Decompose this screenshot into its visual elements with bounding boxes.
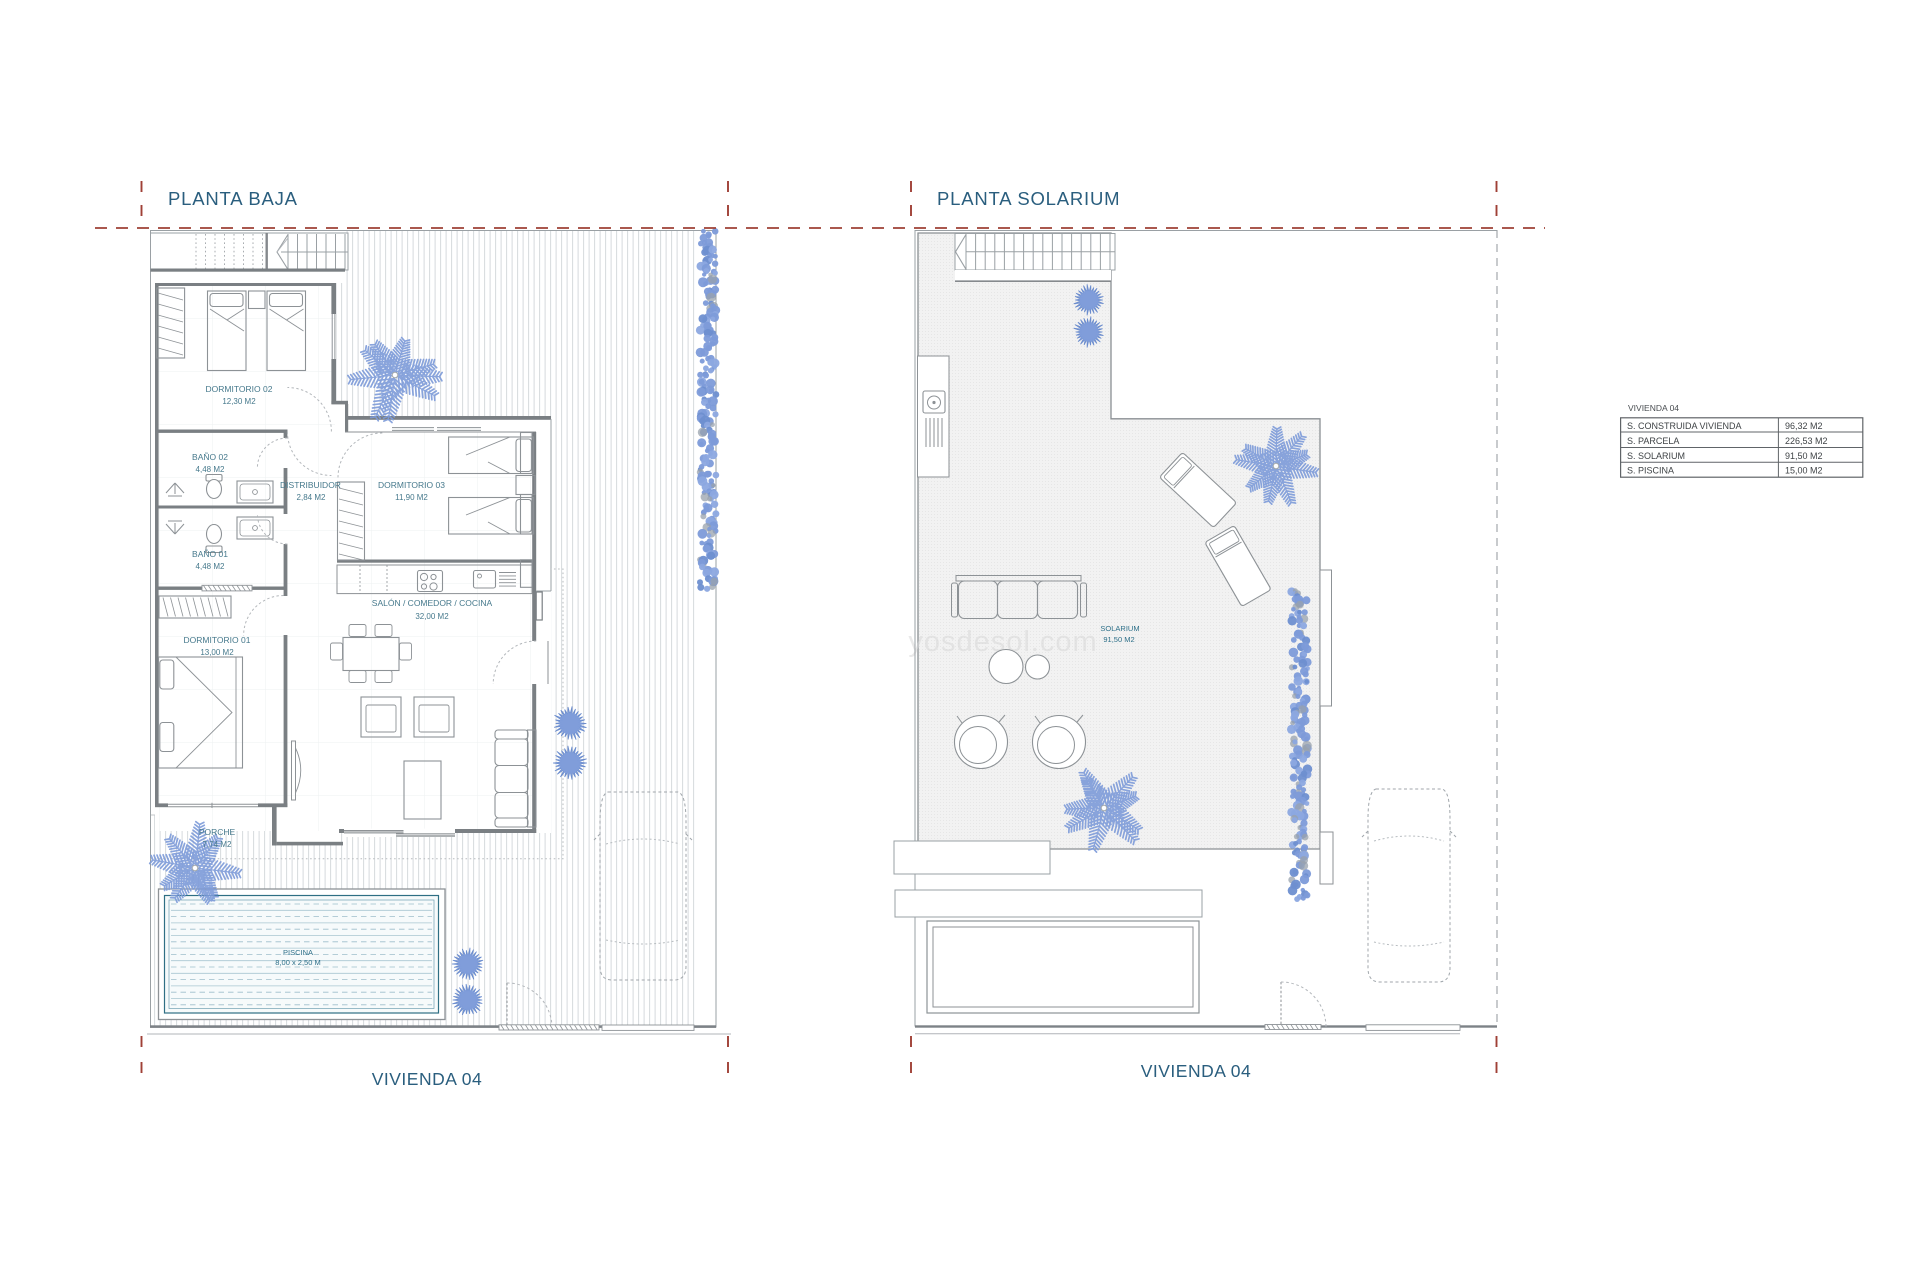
- svg-text:S. SOLARIUM: S. SOLARIUM: [1627, 451, 1685, 461]
- svg-text:12,30 M2: 12,30 M2: [222, 397, 256, 406]
- svg-text:SOLARIUM: SOLARIUM: [1100, 624, 1139, 633]
- svg-text:11,90 M2: 11,90 M2: [395, 493, 428, 502]
- svg-text:4,48 M2: 4,48 M2: [196, 465, 225, 474]
- svg-text:VIVIENDA 04: VIVIENDA 04: [1141, 1061, 1252, 1081]
- svg-text:91,50 M2: 91,50 M2: [1103, 635, 1134, 644]
- svg-text:13,00 M2: 13,00 M2: [200, 648, 234, 657]
- svg-text:PORCHE: PORCHE: [199, 827, 236, 837]
- svg-text:VIVIENDA 04: VIVIENDA 04: [372, 1069, 483, 1089]
- svg-text:PISCINA: PISCINA: [283, 948, 313, 957]
- svg-text:96,32 M2: 96,32 M2: [1785, 421, 1823, 431]
- svg-text:PLANTA BAJA: PLANTA BAJA: [168, 188, 298, 209]
- svg-text:8,00 x 2,50 M: 8,00 x 2,50 M: [275, 958, 320, 967]
- svg-text:SALÓN / COMEDOR / COCINA: SALÓN / COMEDOR / COCINA: [372, 598, 493, 608]
- svg-text:DORMITORIO 02: DORMITORIO 02: [206, 384, 273, 394]
- svg-text:DISTRIBUIDOR: DISTRIBUIDOR: [280, 480, 341, 490]
- svg-text:S. PISCINA: S. PISCINA: [1627, 466, 1674, 476]
- svg-text:4,48 M2: 4,48 M2: [196, 562, 225, 571]
- svg-text:DORMITORIO 01: DORMITORIO 01: [184, 635, 251, 645]
- svg-text:VIVIENDA 04: VIVIENDA 04: [1628, 403, 1679, 413]
- svg-text:91,50 M2: 91,50 M2: [1785, 451, 1823, 461]
- svg-text:PLANTA SOLARIUM: PLANTA SOLARIUM: [937, 188, 1120, 209]
- svg-text:2,84 M2: 2,84 M2: [297, 493, 326, 502]
- svg-text:BAÑO 02: BAÑO 02: [192, 452, 228, 462]
- svg-text:S. CONSTRUIDA VIVIENDA: S. CONSTRUIDA VIVIENDA: [1627, 421, 1742, 431]
- svg-text:BAÑO 01: BAÑO 01: [192, 549, 228, 559]
- svg-text:DORMITORIO 03: DORMITORIO 03: [378, 480, 445, 490]
- svg-text:15,00 M2: 15,00 M2: [1785, 466, 1823, 476]
- svg-text:32,00 M2: 32,00 M2: [415, 612, 449, 621]
- svg-text:226,53 M2: 226,53 M2: [1785, 436, 1828, 446]
- svg-text:S. PARCELA: S. PARCELA: [1627, 436, 1679, 446]
- svg-text:7,74 M2: 7,74 M2: [203, 840, 232, 849]
